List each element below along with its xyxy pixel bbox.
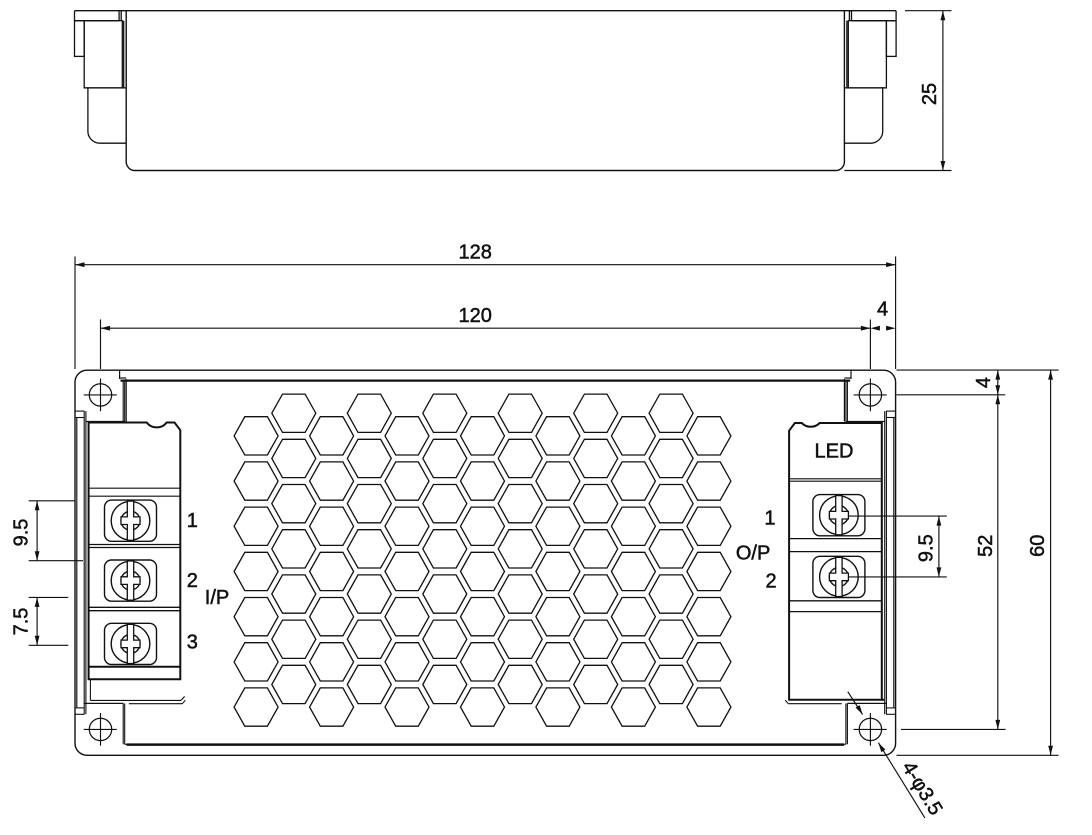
- svg-text:2: 2: [765, 571, 776, 593]
- svg-text:1: 1: [764, 507, 775, 529]
- svg-text:7.5: 7.5: [11, 608, 33, 636]
- svg-text:128: 128: [459, 242, 492, 264]
- svg-text:52: 52: [975, 535, 997, 557]
- svg-text:60: 60: [1027, 535, 1049, 557]
- svg-text:O/P: O/P: [736, 543, 770, 565]
- svg-text:120: 120: [459, 305, 492, 327]
- svg-text:3: 3: [187, 632, 198, 654]
- svg-text:4: 4: [973, 377, 995, 388]
- svg-text:25: 25: [919, 83, 941, 105]
- svg-text:2: 2: [187, 570, 198, 592]
- svg-text:4: 4: [877, 299, 888, 321]
- svg-text:1: 1: [187, 510, 198, 532]
- svg-text:9.5: 9.5: [916, 534, 938, 562]
- svg-text:9.5: 9.5: [11, 519, 33, 547]
- svg-text:LED: LED: [815, 440, 854, 462]
- svg-text:I/P: I/P: [205, 587, 229, 609]
